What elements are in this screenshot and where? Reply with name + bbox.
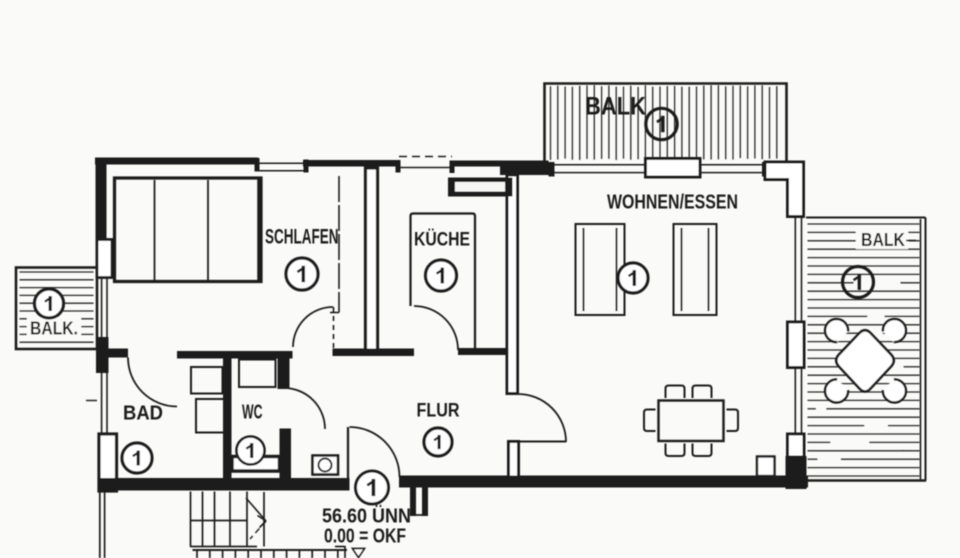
svg-text:SCHLAFEN: SCHLAFEN (265, 226, 339, 249)
svg-text:WOHNEN/ESSEN: WOHNEN/ESSEN (607, 192, 738, 214)
svg-text:BALK: BALK (585, 93, 646, 121)
svg-text:BALK: BALK (861, 229, 906, 250)
svg-text:WC: WC (242, 402, 263, 424)
svg-text:0.00 = OKF: 0.00 = OKF (324, 526, 406, 548)
svg-text:56.60 ÜNN: 56.60 ÜNN (322, 505, 411, 528)
svg-text:FLUR: FLUR (417, 401, 460, 422)
svg-text:KÜCHE: KÜCHE (414, 230, 470, 251)
svg-text:BALK.: BALK. (30, 319, 78, 339)
svg-text:BAD: BAD (123, 403, 163, 425)
